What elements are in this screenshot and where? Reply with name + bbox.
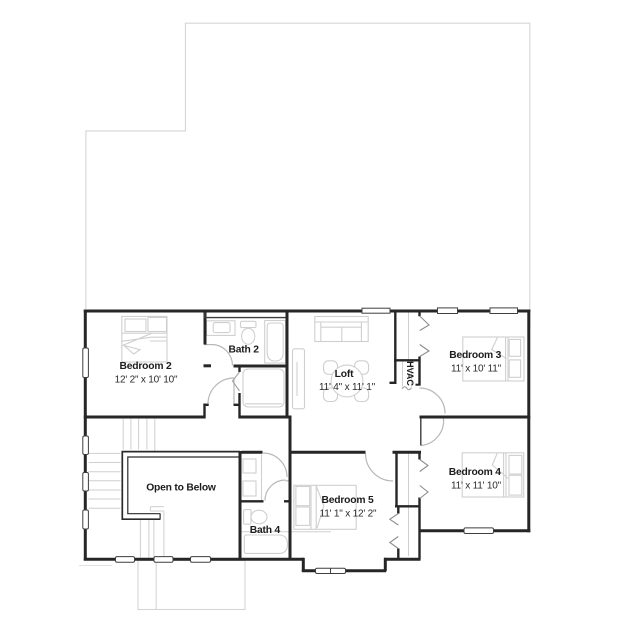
svg-text:Bedroom 2: Bedroom 2 bbox=[120, 361, 172, 372]
svg-text:Open to Below: Open to Below bbox=[146, 482, 217, 493]
svg-text:11' x 10' 11": 11' x 10' 11" bbox=[451, 364, 502, 375]
svg-text:Bedroom 4: Bedroom 4 bbox=[449, 467, 501, 478]
svg-text:Bath 2: Bath 2 bbox=[228, 345, 259, 356]
svg-text:11' 4" x 11' 1": 11' 4" x 11' 1" bbox=[319, 382, 376, 393]
svg-text:12' 2" x 10' 10": 12' 2" x 10' 10" bbox=[115, 375, 178, 386]
svg-text:Bedroom 5: Bedroom 5 bbox=[322, 495, 374, 506]
svg-text:Loft: Loft bbox=[335, 369, 354, 380]
svg-text:11' 1" x 12' 2": 11' 1" x 12' 2" bbox=[320, 509, 377, 520]
svg-text:Bedroom 3: Bedroom 3 bbox=[449, 350, 501, 361]
svg-text:Bath 4: Bath 4 bbox=[250, 525, 281, 536]
svg-text:HVAC: HVAC bbox=[405, 361, 415, 386]
svg-text:11' x 11' 10": 11' x 11' 10" bbox=[451, 481, 502, 492]
